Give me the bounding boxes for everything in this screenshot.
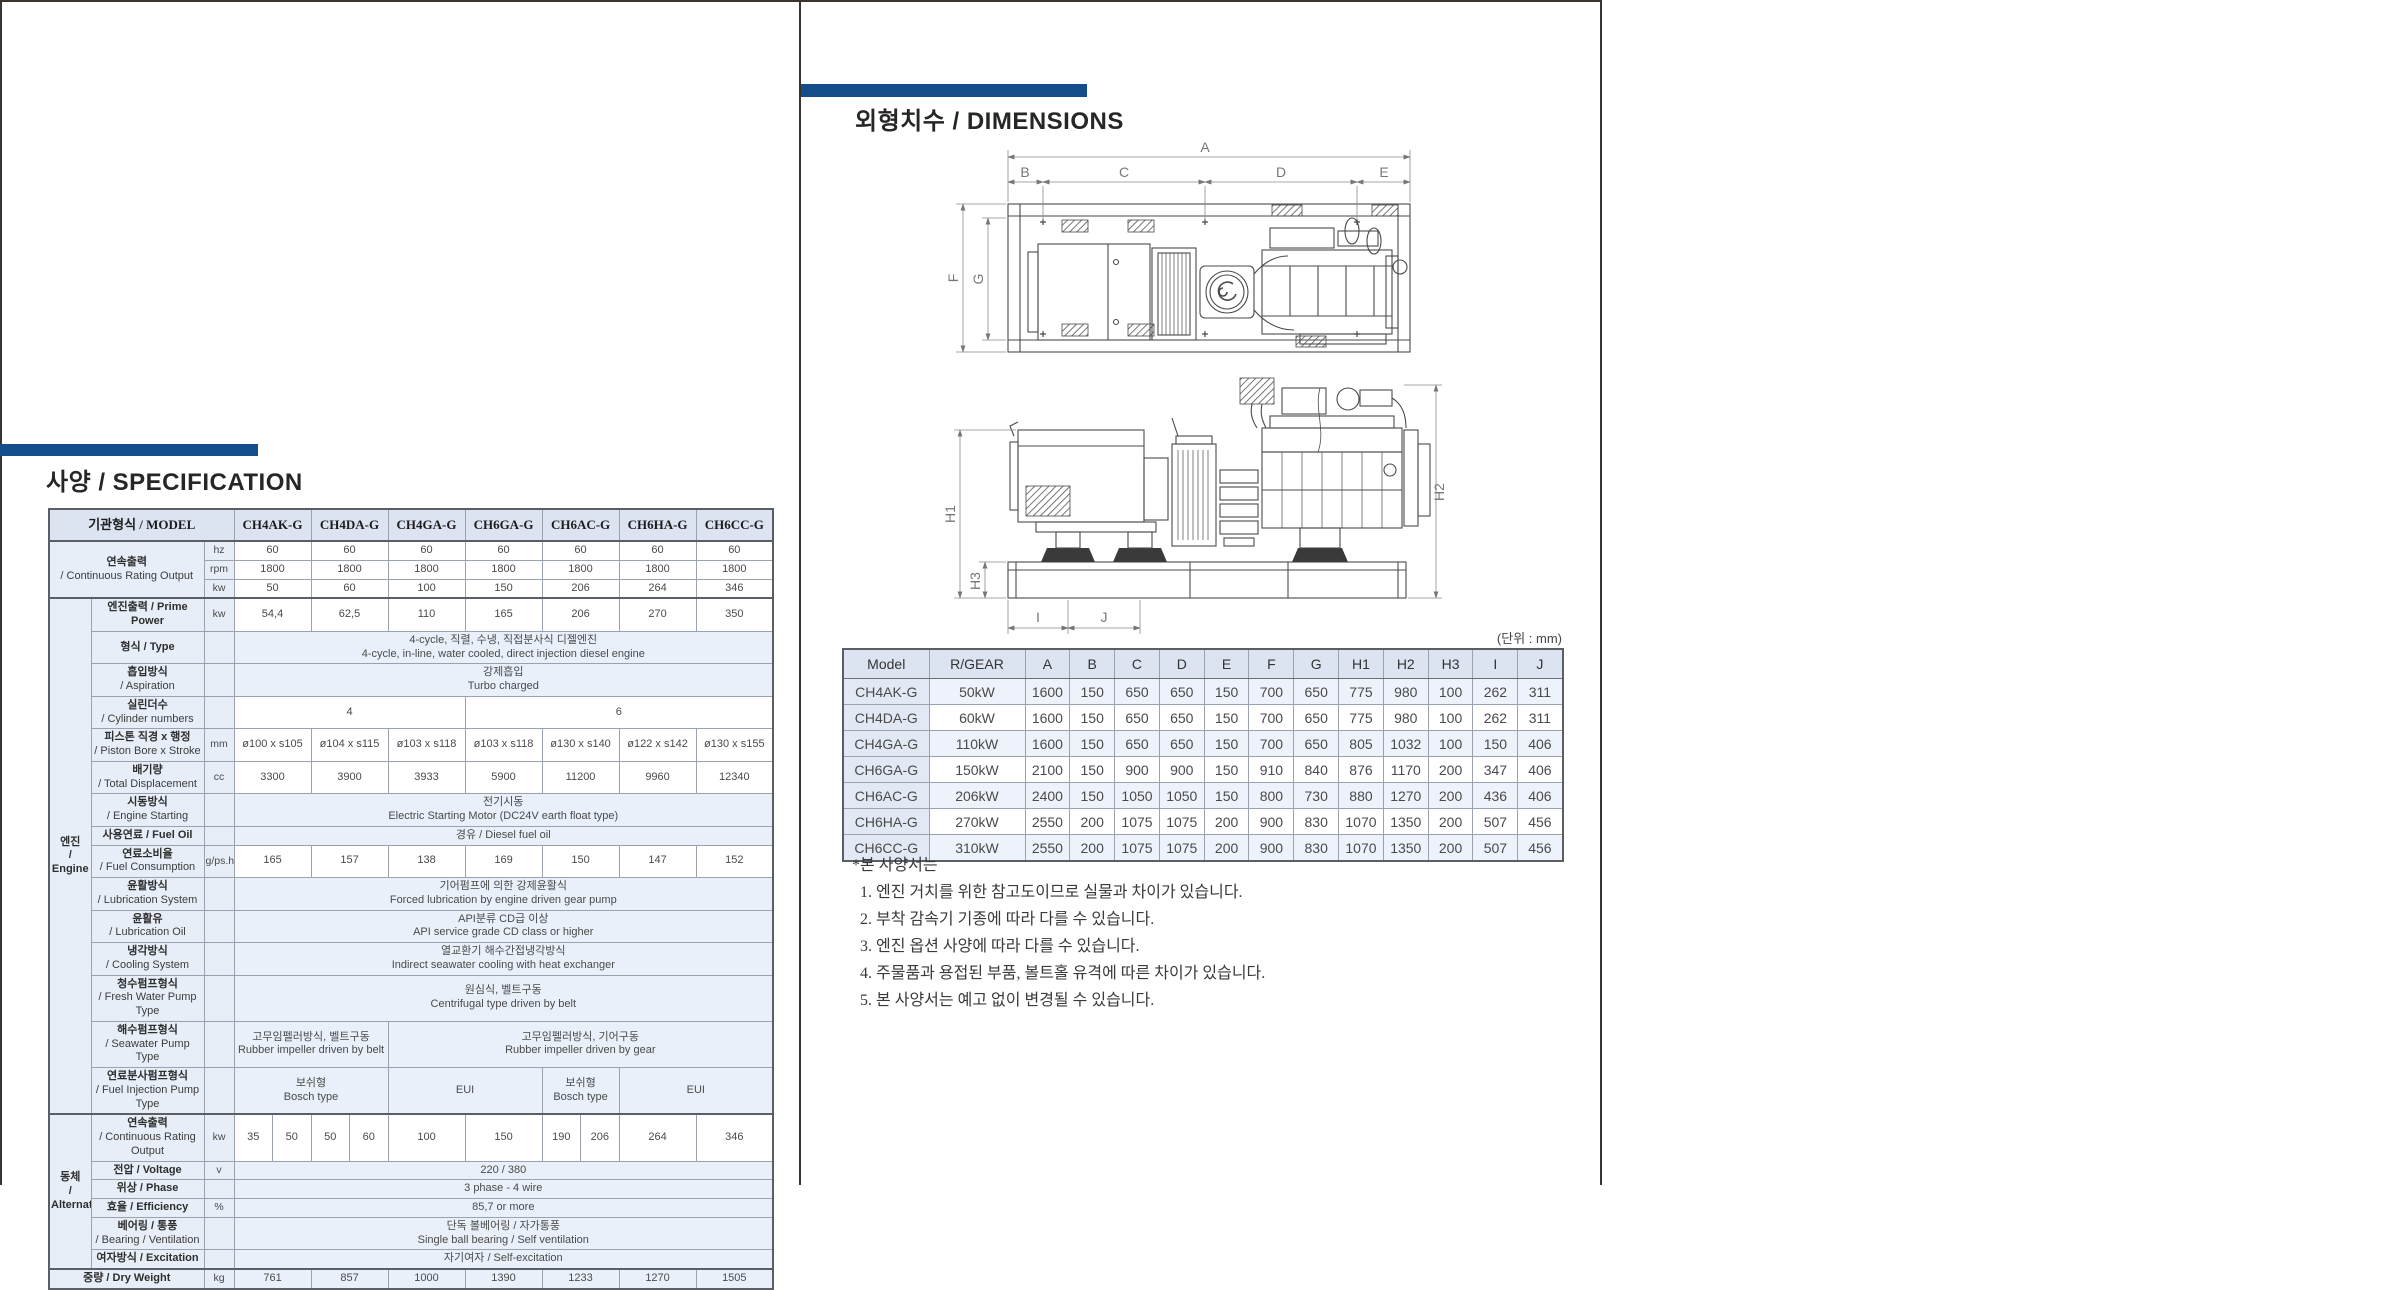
dim-value-cell: 311	[1518, 705, 1563, 731]
dim-value-cell: 650	[1115, 731, 1160, 757]
dim-column-header: H1	[1339, 649, 1384, 679]
dim-value-cell: 100	[1428, 705, 1473, 731]
dim-column-header: F	[1249, 649, 1294, 679]
dim-value-cell: 805	[1339, 731, 1384, 757]
dim-value-cell: 150	[1070, 705, 1115, 731]
spec-value-cell: 761	[234, 1269, 311, 1289]
dim-label-a: A	[1200, 139, 1210, 155]
dim-value-cell: 507	[1473, 809, 1518, 835]
spec-value-cell: 857	[311, 1269, 388, 1289]
dim-value-cell: 800	[1249, 783, 1294, 809]
dim-value-cell: 150	[1070, 783, 1115, 809]
dim-value-cell: 980	[1383, 679, 1428, 705]
dim-value-cell: 840	[1294, 757, 1339, 783]
dim-value-cell: 900	[1115, 757, 1160, 783]
dim-model-cell: CH4GA-G	[843, 731, 929, 757]
dim-value-cell: 150	[1204, 731, 1249, 757]
dim-column-header: Model	[843, 649, 929, 679]
dim-label-g: G	[970, 274, 986, 285]
note-line: *본 사양서는	[852, 852, 1265, 879]
dim-value-cell: 1070	[1339, 809, 1384, 835]
unit-cell	[204, 1250, 234, 1269]
dimension-unit-note: (단위 : mm)	[1452, 628, 1562, 647]
dim-value-cell: 650	[1294, 705, 1339, 731]
dim-value-cell: 150kW	[929, 757, 1025, 783]
dim-value-cell: 347	[1473, 757, 1518, 783]
dim-value-cell: 650	[1115, 705, 1160, 731]
dim-column-header: I	[1473, 649, 1518, 679]
dim-value-cell: 200	[1428, 783, 1473, 809]
dim-value-cell: 1350	[1383, 835, 1428, 862]
dim-label-c: C	[1119, 164, 1129, 180]
dim-label-e: E	[1379, 164, 1388, 180]
dim-value-cell: 830	[1294, 835, 1339, 862]
dim-value-cell: 507	[1473, 835, 1518, 862]
spec-value-cell: 85,7 or more	[234, 1199, 773, 1218]
dim-label-h1: H1	[942, 505, 958, 523]
spec-value-cell: 자기여자 / Self-excitation	[234, 1250, 773, 1269]
note-line: 1. 엔진 거치를 위한 참고도이므로 실물과 차이가 있습니다.	[852, 879, 1265, 906]
dim-value-cell: 456	[1518, 835, 1563, 862]
dim-value-cell: 150	[1070, 757, 1115, 783]
dim-value-cell: 270kW	[929, 809, 1025, 835]
dim-value-cell: 200	[1428, 809, 1473, 835]
dim-value-cell: 1350	[1383, 809, 1428, 835]
dim-value-cell: 650	[1294, 679, 1339, 705]
dim-value-cell: 700	[1249, 731, 1294, 757]
dim-value-cell: 775	[1339, 679, 1384, 705]
dim-column-header: C	[1115, 649, 1160, 679]
dim-column-header: G	[1294, 649, 1339, 679]
dim-column-header: D	[1159, 649, 1204, 679]
dim-value-cell: 200	[1070, 809, 1115, 835]
spec-row-label: 여자방식 / Excitation	[91, 1250, 204, 1269]
dimension-table: ModelR/GEARABCDEFGH1H2H3IJCH4AK-G50kW160…	[842, 648, 1564, 862]
plan-view	[1008, 204, 1410, 352]
note-line: 5. 본 사양서는 예고 없이 변경될 수 있습니다.	[852, 987, 1265, 1014]
plan-dimension-labels: A B C D E F G	[945, 139, 1389, 284]
dim-value-cell: 900	[1159, 757, 1204, 783]
dim-model-cell: CH6HA-G	[843, 809, 929, 835]
dim-value-cell: 100	[1428, 731, 1473, 757]
spec-value-cell: 단독 볼베어링 / 자가통풍Single ball bearing / Self…	[234, 1217, 773, 1250]
dim-model-cell: CH4DA-G	[843, 705, 929, 731]
note-line: 2. 부착 감속기 기종에 따라 다를 수 있습니다.	[852, 906, 1265, 933]
dim-table-row: CH6GA-G150kW2100150900900150910840876117…	[843, 757, 1563, 783]
dim-value-cell: 50kW	[929, 679, 1025, 705]
dim-column-header: J	[1518, 649, 1563, 679]
dim-value-cell: 262	[1473, 705, 1518, 731]
note-line: 3. 엔진 옵션 사양에 따라 다를 수 있습니다.	[852, 933, 1265, 960]
dim-value-cell: 1075	[1115, 809, 1160, 835]
dim-value-cell: 2550	[1025, 809, 1070, 835]
dim-column-header: H3	[1428, 649, 1473, 679]
dim-value-cell: 206kW	[929, 783, 1025, 809]
dim-value-cell: 200	[1428, 835, 1473, 862]
catalog-spread: { "page_left": { "title": "사양 / SPECIFIC…	[0, 0, 2401, 1185]
dim-value-cell: 150	[1204, 679, 1249, 705]
spec-row-label: 중량 / Dry Weight	[49, 1269, 204, 1289]
dim-column-header: A	[1025, 649, 1070, 679]
dim-value-cell: 1075	[1159, 809, 1204, 835]
dim-value-cell: 1050	[1115, 783, 1160, 809]
dim-value-cell: 150	[1070, 731, 1115, 757]
dim-table-row: CH6HA-G270kW2550200107510752009008301070…	[843, 809, 1563, 835]
dim-value-cell: 110kW	[929, 731, 1025, 757]
dim-value-cell: 1070	[1339, 835, 1384, 862]
dim-value-cell: 830	[1294, 809, 1339, 835]
dim-value-cell: 406	[1518, 731, 1563, 757]
dim-label-j: J	[1101, 609, 1108, 625]
spec-value-cell: 1505	[696, 1269, 773, 1289]
dim-value-cell: 200	[1204, 809, 1249, 835]
spec-row-label: 베어링 / 통풍/ Bearing / Ventilation	[91, 1217, 204, 1250]
dim-label-i: I	[1036, 609, 1040, 625]
dim-value-cell: 650	[1294, 731, 1339, 757]
dim-value-cell: 406	[1518, 783, 1563, 809]
dim-value-cell: 2400	[1025, 783, 1070, 809]
spec-value-cell: 1000	[388, 1269, 465, 1289]
dim-value-cell: 730	[1294, 783, 1339, 809]
dim-value-cell: 150	[1070, 679, 1115, 705]
dim-value-cell: 200	[1428, 757, 1473, 783]
dim-value-cell: 1270	[1383, 783, 1428, 809]
unit-cell	[204, 1217, 234, 1250]
dim-value-cell: 900	[1249, 809, 1294, 835]
dim-column-header: E	[1204, 649, 1249, 679]
dim-value-cell: 2100	[1025, 757, 1070, 783]
dim-label-b: B	[1020, 164, 1029, 180]
dim-label-h2: H2	[1431, 483, 1447, 501]
dim-model-cell: CH6AC-G	[843, 783, 929, 809]
dim-value-cell: 150	[1204, 705, 1249, 731]
dim-value-cell: 700	[1249, 679, 1294, 705]
dim-table-row: CH4AK-G50kW16001506506501507006507759801…	[843, 679, 1563, 705]
dim-value-cell: 1600	[1025, 679, 1070, 705]
plan-dimension-lines	[956, 150, 1410, 352]
dim-label-d: D	[1276, 164, 1286, 180]
dim-value-cell: 650	[1159, 705, 1204, 731]
dim-value-cell: 406	[1518, 757, 1563, 783]
side-view	[1008, 378, 1430, 598]
dim-value-cell: 1032	[1383, 731, 1428, 757]
dim-value-cell: 150	[1204, 783, 1249, 809]
dim-column-header: R/GEAR	[929, 649, 1025, 679]
dim-label-f: F	[945, 274, 961, 283]
dim-model-cell: CH6GA-G	[843, 757, 929, 783]
dim-value-cell: 436	[1473, 783, 1518, 809]
dim-value-cell: 456	[1518, 809, 1563, 835]
dim-value-cell: 60kW	[929, 705, 1025, 731]
dim-value-cell: 1600	[1025, 705, 1070, 731]
dim-value-cell: 311	[1518, 679, 1563, 705]
dim-value-cell: 876	[1339, 757, 1384, 783]
footnotes: *본 사양서는 1. 엔진 거치를 위한 참고도이므로 실물과 차이가 있습니다…	[852, 852, 1265, 1014]
dim-column-header: H2	[1383, 649, 1428, 679]
spec-value-cell: 1270	[619, 1269, 696, 1289]
dim-value-cell: 262	[1473, 679, 1518, 705]
dim-table-row: CH4GA-G110kW1600150650650150700650805103…	[843, 731, 1563, 757]
dim-value-cell: 700	[1249, 705, 1294, 731]
dim-value-cell: 150	[1473, 731, 1518, 757]
dim-value-cell: 980	[1383, 705, 1428, 731]
dim-column-header: B	[1070, 649, 1115, 679]
unit-cell: kg	[204, 1269, 234, 1289]
dim-label-h3: H3	[967, 572, 983, 590]
spec-row-label: 효율 / Efficiency	[91, 1199, 204, 1218]
spec-value-cell: 1390	[465, 1269, 542, 1289]
dim-value-cell: 910	[1249, 757, 1294, 783]
dim-value-cell: 650	[1159, 731, 1204, 757]
dim-value-cell: 775	[1339, 705, 1384, 731]
unit-cell: %	[204, 1199, 234, 1218]
dim-value-cell: 880	[1339, 783, 1384, 809]
dim-table-row: CH4DA-G60kW16001506506501507006507759801…	[843, 705, 1563, 731]
dim-table-row: CH6AC-G206kW2400150105010501508007308801…	[843, 783, 1563, 809]
dim-model-cell: CH4AK-G	[843, 679, 929, 705]
dim-value-cell: 650	[1159, 679, 1204, 705]
dim-value-cell: 100	[1428, 679, 1473, 705]
note-line: 4. 주물품과 용접된 부품, 볼트홀 유격에 따른 차이가 있습니다.	[852, 960, 1265, 987]
dim-value-cell: 1600	[1025, 731, 1070, 757]
dim-value-cell: 1170	[1383, 757, 1428, 783]
dim-value-cell: 1050	[1159, 783, 1204, 809]
dim-value-cell: 650	[1115, 679, 1160, 705]
dim-value-cell: 150	[1204, 757, 1249, 783]
spec-value-cell: 1233	[542, 1269, 619, 1289]
